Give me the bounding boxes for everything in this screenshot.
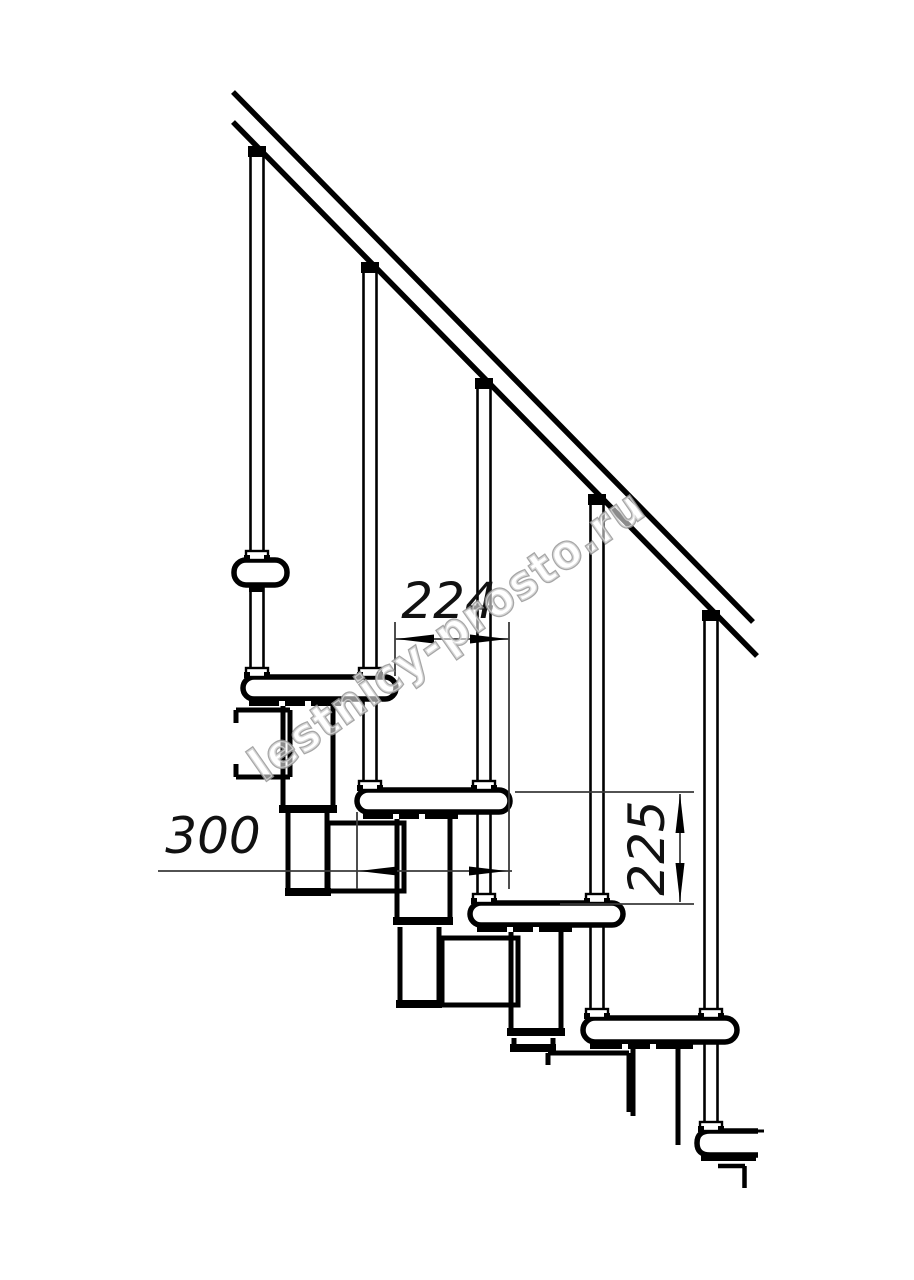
treads (234, 560, 764, 1155)
drawing-canvas: 224 300 225 lestnicy-prosto.ru (0, 0, 914, 1280)
lock-plate-5 (590, 1040, 693, 1049)
spine-box-3 (328, 823, 404, 891)
baluster-5-rail-cap (702, 610, 720, 621)
handrail-top-line (233, 92, 753, 622)
collar-b5-t5 (698, 1009, 724, 1019)
spine-cut-lines (718, 1166, 745, 1188)
collar-b4-t4 (584, 894, 610, 904)
collar-b5-t6 (698, 1122, 724, 1132)
spine-column-5 (633, 1048, 678, 1145)
watermark-text: lestnicy-prosto.ru (239, 478, 655, 792)
tread-1-stub (234, 560, 287, 585)
baluster-1 (248, 146, 266, 677)
collar-b3-t3 (471, 781, 497, 791)
dim300-arrow-right (469, 867, 507, 876)
collar-b3-t4 (471, 894, 497, 904)
tread-3 (357, 790, 510, 812)
lock-plate-3 (363, 810, 458, 819)
tread-6-partial (697, 1131, 758, 1155)
baluster-1-rail-cap (248, 146, 266, 157)
lock-plate-6 (701, 1153, 756, 1161)
collar-b4-t5 (584, 1009, 610, 1019)
dim225-label: 225 (618, 800, 676, 895)
baluster-2-rail-cap (361, 262, 379, 273)
collar-b2-t3 (357, 781, 383, 791)
spine-box-5 (548, 1053, 629, 1112)
baluster-3-rail-cap (475, 378, 493, 389)
baluster-4 (588, 494, 606, 1018)
dim225-arrow-down (676, 863, 685, 902)
tread-4 (470, 903, 623, 925)
dim300-arrow-left (359, 867, 397, 876)
tread-5 (583, 1018, 737, 1042)
collar-b1-t2 (244, 668, 270, 678)
spine-box-4 (442, 938, 518, 1005)
dim225-arrow-up (676, 794, 685, 833)
collar-b1-bracket (244, 551, 270, 561)
dimension-300: 300 (158, 807, 512, 889)
dim300-label: 300 (165, 807, 260, 865)
baluster-5 (702, 610, 720, 1131)
staircase-drawing-svg: 224 300 225 lestnicy-prosto.ru (0, 0, 914, 1280)
lock-plate-4 (477, 923, 572, 932)
